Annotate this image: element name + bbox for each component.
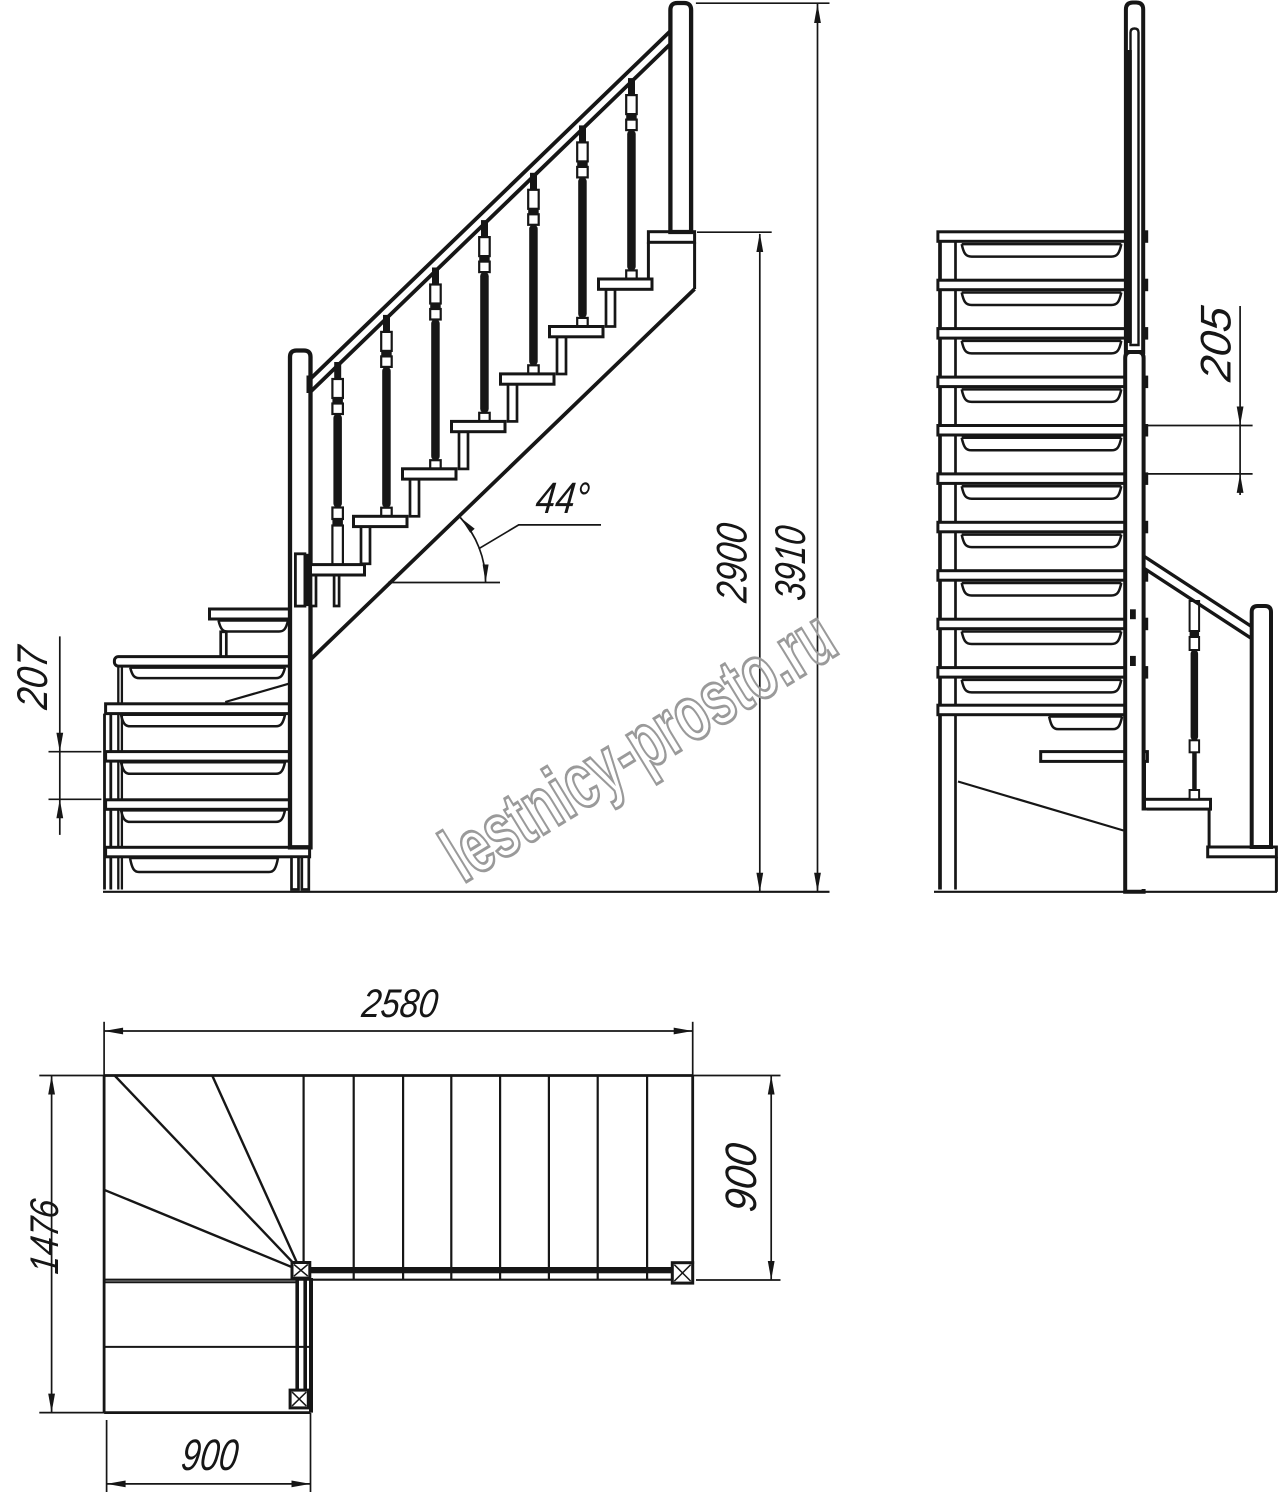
svg-text:2900: 2900: [709, 521, 757, 606]
svg-text:1476: 1476: [22, 1196, 67, 1276]
svg-text:205: 205: [1193, 303, 1241, 385]
svg-text:900: 900: [717, 1140, 766, 1214]
svg-text:2580: 2580: [359, 981, 441, 1026]
svg-text:900: 900: [179, 1431, 242, 1480]
svg-text:207: 207: [9, 642, 57, 712]
svg-text:3910: 3910: [767, 523, 815, 603]
svg-text:44°: 44°: [533, 474, 592, 523]
